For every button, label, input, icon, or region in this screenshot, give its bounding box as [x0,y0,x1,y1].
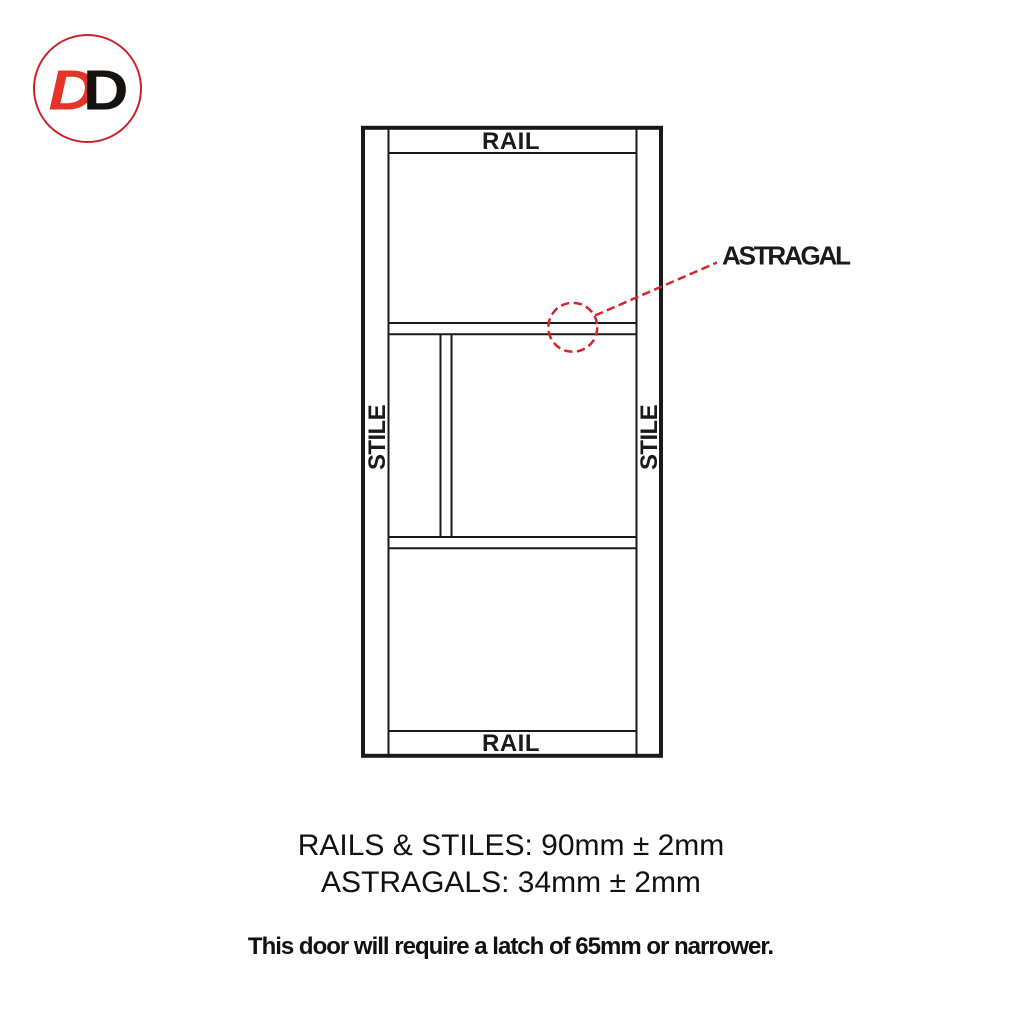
svg-text:ASTRAGAL: ASTRAGAL [722,241,851,271]
svg-text:RAIL: RAIL [482,730,540,757]
svg-text:RAIL: RAIL [482,128,540,155]
svg-text:STILE: STILE [636,404,663,470]
svg-text:STILE: STILE [364,404,391,470]
